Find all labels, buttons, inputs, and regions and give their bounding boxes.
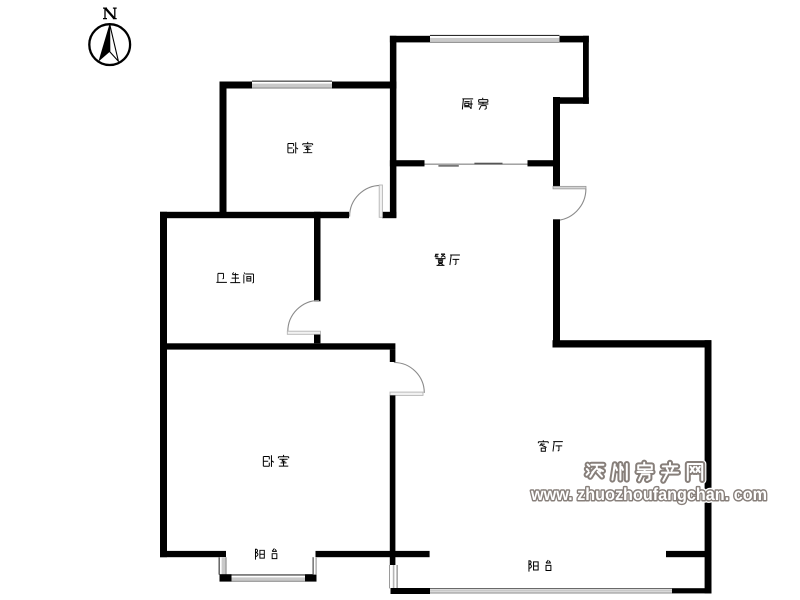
svg-text:www. zhuozhoufangchan. com: www. zhuozhoufangchan. com (530, 484, 767, 504)
